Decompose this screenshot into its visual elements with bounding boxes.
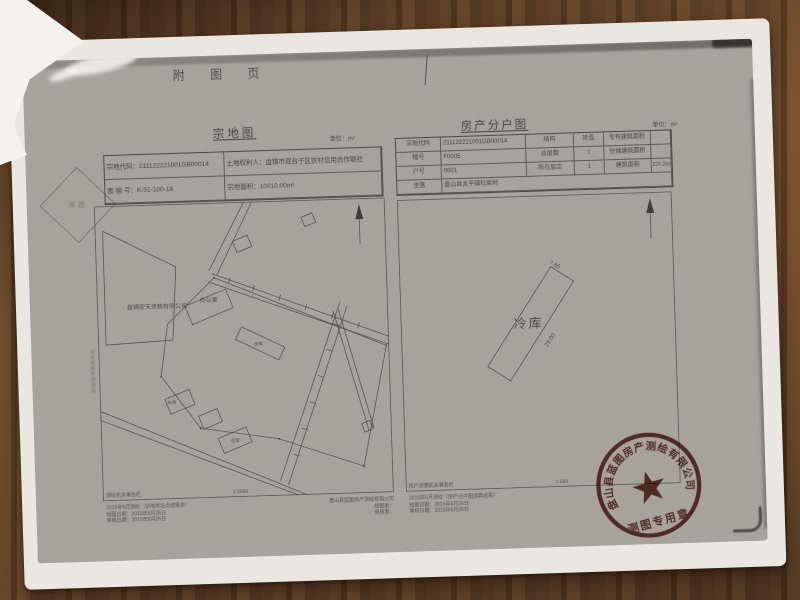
hdr-parcel-code: 宗地代码 [396,138,441,153]
photocopy-toner-area: 附 图 页 审图 宗地图 单位：m² 宗地代码：211122221001GB00… [22,39,767,564]
shed-label: 仓库 [254,340,264,347]
parcel-map-unit-label: 单位：m² [330,133,355,143]
dim-length-label: 29.00 [544,332,557,348]
hdr-location: 坐落 [397,180,442,195]
document-page: 附 图 页 审图 宗地图 单位：m² 宗地代码：211122221001GB00… [8,18,787,590]
plan-frame [94,198,393,501]
cold-storage-label: 冷库 [513,315,543,331]
small-buildings [159,213,323,455]
garage-label: 车库 [167,399,177,406]
seal-banner-text: 测图专用章 [626,505,691,536]
north-arrow-icon [646,198,655,238]
warehouse-label: 仓库 [231,437,241,444]
office-building [184,289,233,325]
val-floor-level: 1 [575,160,605,175]
north-arrow-icon [355,204,364,244]
map-scale: 1:2000 [233,489,249,495]
map-sheet-cell: 图 幅 号：K-51-100-18 [105,176,226,204]
scan-blotch [712,39,758,48]
parcel-info-table: 宗地代码：211122221001GB00014 土地权利人：盘锦市双台子区农村… [103,146,383,205]
parcel-plan-drawing: 盘锦宏天涂装有限公司 办公室 车库 仓库 仓库 [94,197,394,501]
val-shared-area [651,144,671,159]
parcel-map-title: 宗地图 [174,123,294,143]
hdr-unit-no: 户号 [397,166,442,181]
unit-plan-title: 房产分户图 [419,114,569,135]
company-label: 盘锦宏天涂装有限公司 [127,302,187,312]
unit-footer-lines: 2015年6月测绘（房产分户图测算成果） 绘图日期：2015年6月26日 审核日… [409,493,498,515]
road-lines [94,197,394,501]
hdr-floor-level: 所在层次 [527,161,575,177]
unit-plan-unit-label: 单位：m² [652,119,677,129]
hdr-exclusive-area: 专有建筑面积 [604,131,651,146]
footer-line: 审核日期：2015年6月26日 [409,506,498,515]
hdr-shared-area: 分摊建筑面积 [604,145,651,160]
scan-shadow-top [22,39,752,70]
scan-shadow-right [748,79,768,529]
surveyor-org-label: 测绘机关署名栏 [106,491,141,499]
footer-line: 审核日期：2015年6月26日 [107,516,191,525]
photo-of-document: { "header": { "title": "附 图 页" }, "parce… [0,0,800,600]
diamond-stamp-text: 审图 [69,200,87,211]
copied-page-corner [733,507,763,533]
star-icon [629,467,669,506]
office-label: 办公室 [200,296,218,305]
hdr-building-no: 幢号 [396,152,441,167]
correction-smudge [63,47,139,80]
pen-mark [425,55,430,85]
unit-info-table: 宗地代码 211122221001GB00014 结构 砖混 专有建筑面积 幢号… [395,129,674,196]
parcel-footer-lines: 2015年6月测绘（宗地界址点成果表） 绘图日期：2015年6月26日 审核日期… [106,503,190,525]
unit-surveyor-org-label: 房产测量机关署名栏 [409,481,454,489]
hdr-total-floors: 总层数 [526,147,574,163]
side-note-vertical: 测绘成果专用图纸 [89,349,99,469]
hdr-structure: 结构 [526,133,574,149]
map-scale: 1:500 [556,479,569,485]
page-header-title: 附 图 页 [172,64,270,84]
val-floor-area: 226.2m² [652,158,672,173]
parcel-area-cell: 宗地面积：10010.00m² [225,171,383,200]
val-exclusive-area [651,130,671,145]
val-total-floors: 1 [574,146,604,161]
parcel-footer-company-block: 盘山县蓝图房产测绘有限公司 绘图者： 审核者： [274,496,395,519]
val-structure: 砖混 [574,132,604,147]
hdr-floor-area: 建筑面积 [605,159,652,174]
